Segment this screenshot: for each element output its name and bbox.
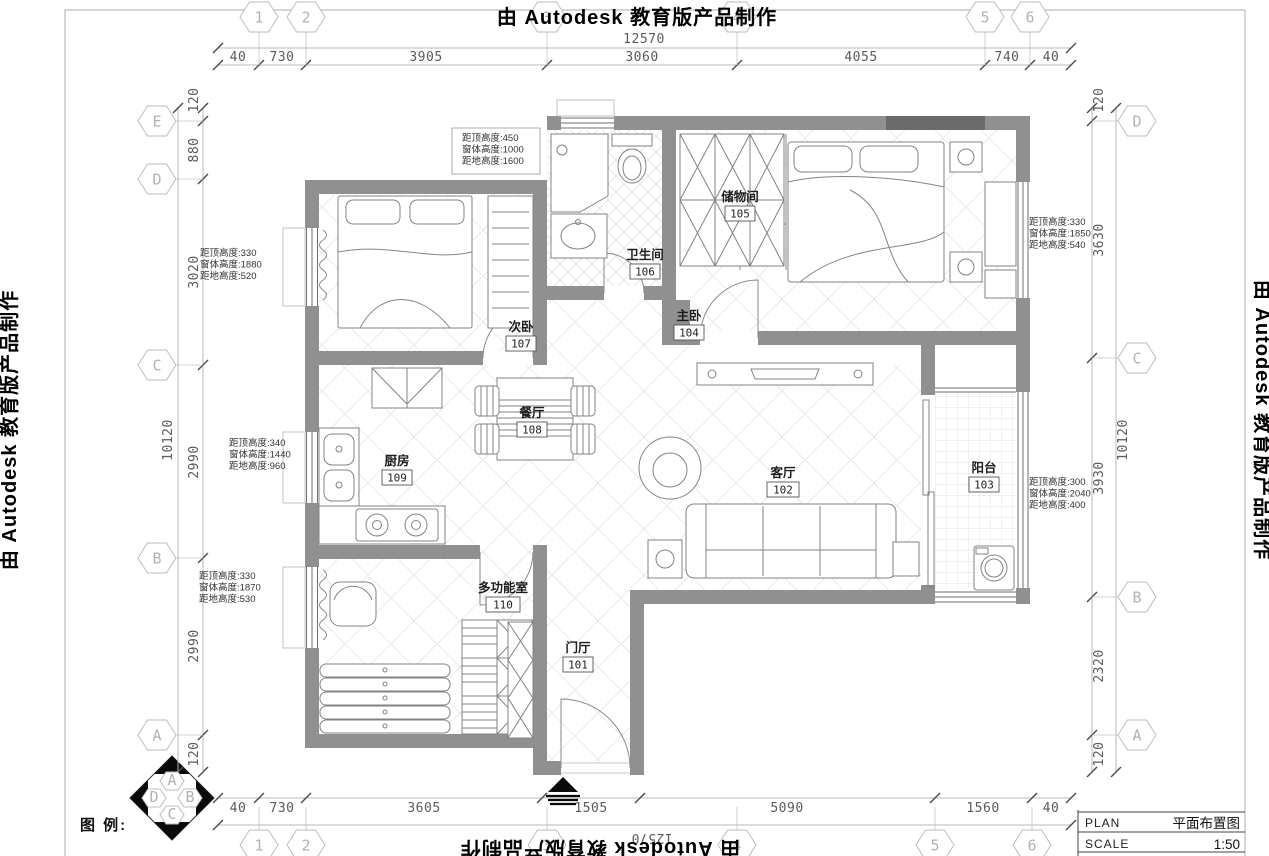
grid-bubble-right-C: C xyxy=(1132,349,1141,367)
grid-bubble-left-A: A xyxy=(152,726,161,744)
dim-top-seg: 3905 xyxy=(409,50,442,65)
dim-top-seg: 40 xyxy=(1043,50,1060,65)
grid-bubble-top-1: 1 xyxy=(254,8,263,26)
window-annotation: 窗体高度:1440 xyxy=(229,449,291,461)
room-number-102: 102 xyxy=(773,484,793,497)
dim-top-seg: 40 xyxy=(230,50,247,65)
window-annotation: 距地高度:520 xyxy=(200,270,257,282)
room-number-104: 104 xyxy=(679,327,699,340)
grid-bubble-bottom-5: 5 xyxy=(930,836,939,854)
dim-right-seg: 3930 xyxy=(1092,461,1107,494)
dim-bottom-seg: 1505 xyxy=(574,801,607,816)
compass-bubble-C: C xyxy=(167,805,176,823)
entry-marker xyxy=(546,777,580,804)
window-annotation: 距顶高度:450 xyxy=(462,132,519,144)
grid-bubble-left-E: E xyxy=(152,112,161,130)
room-label-104: 主卧 xyxy=(676,308,702,323)
titleblock-scale-label: SCALE xyxy=(1085,837,1129,851)
grid-bubble-right-A: A xyxy=(1132,726,1141,744)
dim-top-seg: 740 xyxy=(995,50,1020,65)
compass-bubble-D: D xyxy=(149,788,158,806)
room-number-109: 109 xyxy=(387,472,407,485)
room-label-101: 门厅 xyxy=(565,640,591,655)
compass-bubble-B: B xyxy=(185,788,194,806)
room-number-110: 110 xyxy=(493,599,513,612)
grid-bubble-left-C: C xyxy=(152,356,161,374)
room-label-103: 阳台 xyxy=(971,460,996,475)
dim-top-seg: 4055 xyxy=(844,50,877,65)
room-number-103: 103 xyxy=(974,479,994,492)
dim-left-seg: 120 xyxy=(187,88,202,113)
dim-top-seg: 730 xyxy=(270,50,295,65)
watermark-right: 由 Autodesk 教育版产品制作 xyxy=(1251,280,1269,560)
room-number-105: 105 xyxy=(730,208,750,221)
grid-bubble-top-5: 5 xyxy=(980,8,989,26)
grid-bubble-left-D: D xyxy=(152,170,161,188)
dim-left-total: 10120 xyxy=(161,419,176,461)
room-number-108: 108 xyxy=(522,424,542,437)
dim-right-seg: 120 xyxy=(1092,742,1107,767)
title-block: PLAN 平面布置图 SCALE 1:50 xyxy=(1078,810,1245,856)
grid-bubble-bottom-1: 1 xyxy=(254,836,263,854)
dim-right-seg: 3630 xyxy=(1092,223,1107,256)
grid-bubble-bottom-2: 2 xyxy=(301,836,310,854)
dim-left-seg: 880 xyxy=(187,138,202,163)
window-annotation: 距地高度:530 xyxy=(199,593,256,605)
dim-top-seg: 3060 xyxy=(625,50,658,65)
window-annotation: 窗体高度:1870 xyxy=(199,582,261,594)
window-annotation: 距顶高度:340 xyxy=(229,437,286,449)
window-annotation: 距顶高度:330 xyxy=(199,570,256,582)
titleblock-plan-value: 平面布置图 xyxy=(1173,816,1241,831)
dim-right-total: 10120 xyxy=(1116,419,1131,461)
window-annotation: 窗体高度:1000 xyxy=(462,144,524,156)
room-label-105: 储物间 xyxy=(720,189,759,204)
room-label-102: 客厅 xyxy=(769,465,796,480)
room-number-101: 101 xyxy=(568,659,588,672)
watermark-left: 由 Autodesk 教育版产品制作 xyxy=(0,290,21,570)
grid-bubble-top-2: 2 xyxy=(301,8,310,26)
dim-bottom-seg: 1560 xyxy=(966,801,999,816)
window-annotation: 距地高度:400 xyxy=(1029,499,1086,511)
grid-bubble-right-B: B xyxy=(1132,588,1141,606)
watermark-bottom: 由 Autodesk 教育版产品制作 xyxy=(460,837,740,856)
compass-bubble-A: A xyxy=(167,771,176,789)
dim-bottom-seg: 40 xyxy=(1043,801,1060,816)
window-annotation: 距地高度:960 xyxy=(229,460,286,472)
dim-left-seg: 2990 xyxy=(187,629,202,662)
watermark-top: 由 Autodesk 教育版产品制作 xyxy=(497,5,777,29)
titleblock-scale-value: 1:50 xyxy=(1214,837,1240,852)
room-number-107: 107 xyxy=(511,338,531,351)
dim-right-seg: 120 xyxy=(1092,88,1107,113)
grid-bubble-right-D: D xyxy=(1132,112,1141,130)
window-annotation: 窗体高度:2040 xyxy=(1029,488,1091,500)
room-label-107: 次卧 xyxy=(508,319,534,334)
window-annotation: 窗体高度:1850 xyxy=(1029,228,1091,240)
grid-bubble-top-6: 6 xyxy=(1025,8,1034,26)
room-label-109: 厨房 xyxy=(384,453,409,468)
window-annotation: 距顶高度:330 xyxy=(200,247,257,259)
dim-left-seg: 2990 xyxy=(187,445,202,478)
window-annotation: 距顶高度:330 xyxy=(1029,216,1086,228)
window-annotation: 距地高度:1600 xyxy=(462,155,524,167)
room-label-110: 多功能室 xyxy=(478,580,529,595)
dim-right-seg: 2320 xyxy=(1092,649,1107,682)
room-number-106: 106 xyxy=(635,266,655,279)
dim-bottom-seg: 3605 xyxy=(407,801,440,816)
dim-bottom-seg: 40 xyxy=(230,801,247,816)
room-label-108: 餐厅 xyxy=(518,405,545,420)
grid-bubble-left-B: B xyxy=(152,549,161,567)
dim-bottom-seg: 5090 xyxy=(770,801,803,816)
dim-left-seg: 120 xyxy=(187,742,202,767)
grid-bubble-bottom-6: 6 xyxy=(1027,836,1036,854)
room-label-106: 卫生间 xyxy=(626,247,664,262)
dim-bottom-seg: 730 xyxy=(270,801,295,816)
window-annotation: 距地高度:540 xyxy=(1029,239,1086,251)
window-annotation: 窗体高度:1880 xyxy=(200,259,262,271)
window-annotation: 距顶高度:300 xyxy=(1029,476,1086,488)
dim-top-total: 12570 xyxy=(623,32,665,47)
legend-label: 图 例: xyxy=(80,816,127,834)
floor-plan-drawing: PLAN 平面布置图 SCALE 1:50 图 例: 1257040730390… xyxy=(0,0,1269,856)
titleblock-plan-label: PLAN xyxy=(1085,816,1120,830)
